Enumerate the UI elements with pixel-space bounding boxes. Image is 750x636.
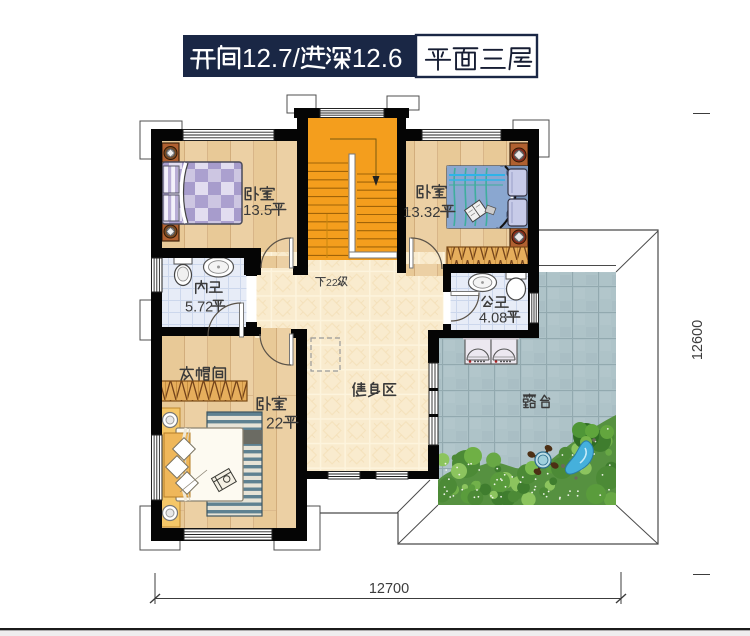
svg-text:12700: 12700	[369, 581, 409, 597]
svg-text:4.08: 4.08	[479, 310, 507, 326]
svg-text:22: 22	[326, 277, 338, 289]
svg-text:22: 22	[266, 415, 283, 432]
svg-text:12.7/: 12.7/	[242, 43, 301, 73]
svg-text:13.5: 13.5	[243, 202, 272, 219]
svg-text:12.6: 12.6	[352, 43, 403, 73]
svg-text:12600: 12600	[690, 320, 706, 360]
svg-text:13.32: 13.32	[403, 204, 441, 221]
svg-text:5.72: 5.72	[185, 299, 213, 315]
